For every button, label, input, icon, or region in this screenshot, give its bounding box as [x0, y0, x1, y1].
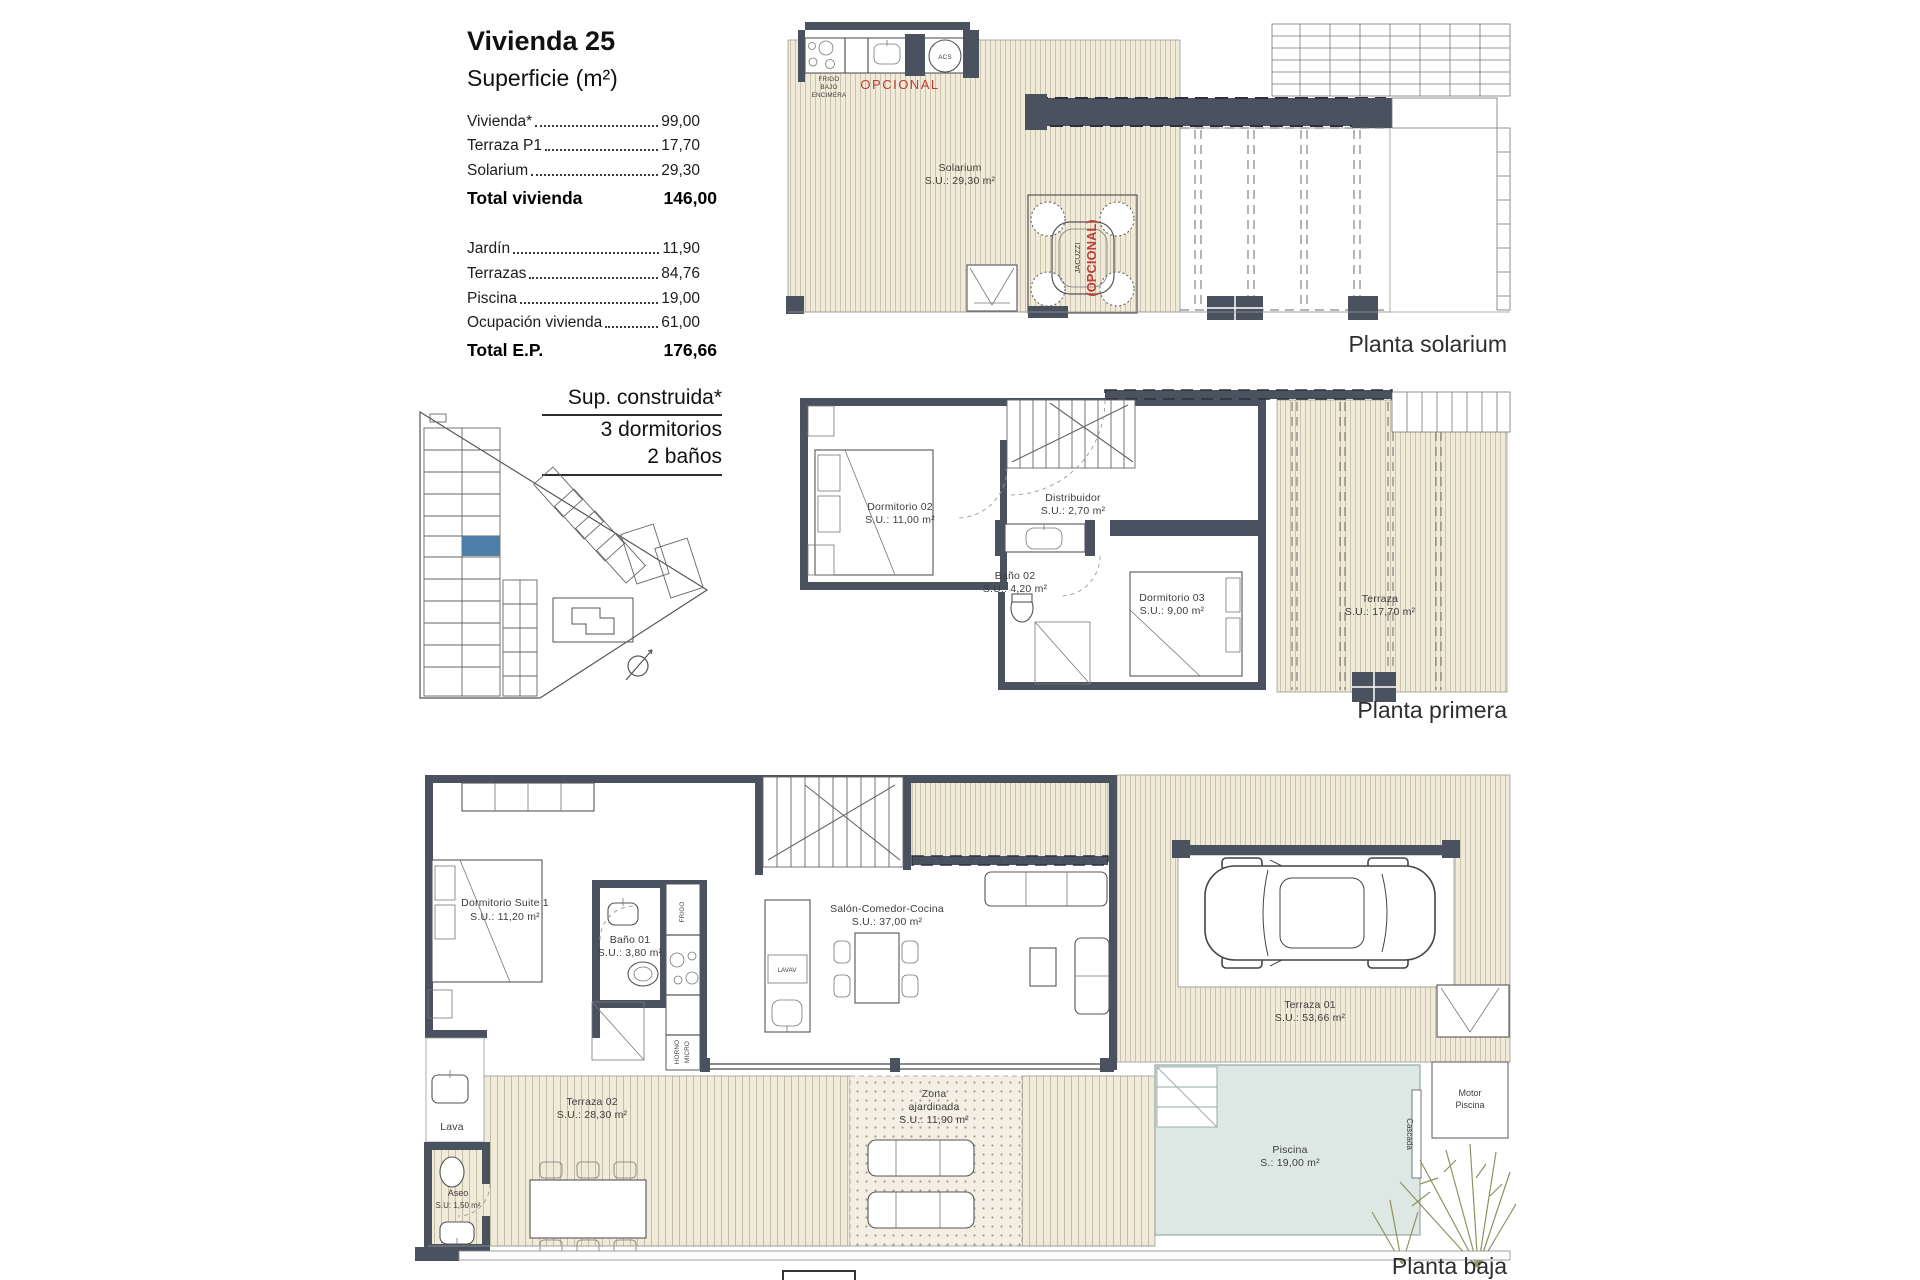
- surface-subtitle: Superficie (m²): [467, 65, 717, 92]
- room-area-solarium: S.U.: 29,30 m²: [925, 175, 996, 187]
- page-title: Vivienda 25: [467, 26, 717, 57]
- plan-sheet: Vivienda 25 Superficie (m²) Vivienda* 99…: [0, 0, 1920, 1280]
- row-value: 61,00: [661, 314, 700, 332]
- room-area-distribuidor: S.U.: 2,70 m²: [1041, 505, 1106, 517]
- cascada-label: Cascada: [1405, 1118, 1414, 1150]
- room-label-suite: Dormitorio Suite 1: [461, 897, 549, 909]
- room-area-dormitorio03: S.U.: 9,00 m²: [1140, 605, 1205, 617]
- table-spacer: [467, 209, 717, 234]
- plan-solarium: ACS FRIGO BAJO ENCIMERA OPCIONAL: [780, 20, 1520, 355]
- jacuzzi-label: JACUZZI: [1073, 243, 1082, 274]
- info-panel: Vivienda 25 Superficie (m²) Vivienda* 99…: [467, 26, 717, 361]
- row-value: 84,76: [661, 265, 700, 283]
- north-arrow-icon: [626, 650, 652, 680]
- row-value: 17,70: [661, 137, 700, 155]
- room-area-piscina: S.: 19,00 m²: [1260, 1157, 1320, 1169]
- room-label-distribuidor: Distribuidor: [1045, 492, 1101, 504]
- room-label-banio02: Baño 02: [995, 570, 1036, 582]
- surface-table: Vivienda* 99,00 Terraza P1 17,70 Solariu…: [467, 106, 717, 361]
- row-label: Jardín: [467, 240, 510, 258]
- dotted-leader: [605, 326, 658, 328]
- lavav-label: LAVAV: [778, 967, 798, 974]
- opcional-label: OPCIONAL: [860, 77, 939, 92]
- banio01-fixtures: [592, 898, 658, 1060]
- dotted-leader: [535, 125, 658, 127]
- stairs: [1007, 400, 1135, 468]
- motor-label-2: Piscina: [1455, 1100, 1484, 1110]
- dormitorio-02-bed: [808, 406, 933, 575]
- row-value: 11,90: [662, 240, 700, 258]
- row-label: Terrazas: [467, 265, 526, 283]
- kitchen-label-micro: MICRO: [684, 1041, 691, 1063]
- row-label: Total E.P.: [467, 340, 543, 361]
- table-row: Vivienda* 99,00: [467, 106, 717, 131]
- garden-label-1: Zona: [922, 1088, 947, 1100]
- room-area-banio01: S.U.: 3,80 m²: [598, 947, 663, 959]
- row-value: 29,30: [661, 162, 700, 180]
- plan-title-primera: Planta primera: [1357, 697, 1507, 723]
- stair-roof-upper: [1392, 392, 1510, 432]
- kitchen-label-horno: HORNO: [674, 1040, 681, 1064]
- skylight-box: [967, 265, 1017, 311]
- table-row: Ocupación vivienda 61,00: [467, 308, 717, 333]
- room-area-aseo: S.U: 1,50 m²: [436, 1201, 481, 1210]
- room-label-salon: Salón-Comedor-Cocina: [830, 903, 944, 915]
- plan-title-solarium: Planta solarium: [1348, 331, 1507, 355]
- row-label: Terraza P1: [467, 137, 542, 155]
- row-label: Ocupación vivienda: [467, 314, 602, 332]
- lava-label: Lava: [440, 1121, 464, 1133]
- room-label-solarium: Solarium: [938, 162, 981, 174]
- room-label-dormitorio02: Dormitorio 02: [867, 501, 933, 513]
- kitchen-label-frigo: FRIGO: [679, 902, 686, 923]
- room-label-terraza: Terraza: [1362, 593, 1398, 605]
- site-key-plan: [405, 405, 725, 715]
- room-label-piscina: Piscina: [1272, 1144, 1307, 1156]
- salon-furniture: LAVAV: [765, 872, 1109, 1032]
- plan-title-baja: Planta baja: [1392, 1253, 1507, 1279]
- row-label: Total vivienda: [467, 188, 582, 209]
- kitchen-label-encimera: ENCIMERA: [812, 92, 847, 99]
- row-label: Vivienda*: [467, 113, 532, 131]
- acs-label: ACS: [938, 54, 952, 61]
- table-row: Solarium 29,30: [467, 155, 717, 180]
- highlighted-unit: [462, 536, 500, 556]
- row-label: Piscina: [467, 290, 517, 308]
- room-area-dormitorio02: S.U.: 11,00 m²: [865, 514, 935, 526]
- plan-primera: Dormitorio 02 S.U.: 11,00 m² Baño 02 S.U…: [780, 385, 1520, 725]
- car: [1205, 858, 1435, 968]
- pergola-beam: [1025, 94, 1392, 130]
- dotted-leader: [545, 149, 658, 151]
- table-row: Jardín 11,90: [467, 234, 717, 259]
- table-row: Terrazas 84,76: [467, 258, 717, 283]
- room-label-dormitorio03: Dormitorio 03: [1139, 592, 1205, 604]
- skylight-box-baja: [1437, 985, 1509, 1037]
- stairs: [763, 777, 903, 867]
- lava-area: Lava: [426, 1038, 484, 1142]
- row-value: 19,00: [661, 290, 700, 308]
- jacuzzi-opcional-label: (OPCIONAL): [1084, 219, 1099, 296]
- table-row: Piscina 19,00: [467, 283, 717, 308]
- room-label-aseo: Aseo: [448, 1188, 469, 1198]
- room-area-terraza02: S.U.: 28,30 m²: [557, 1109, 628, 1121]
- room-label-terraza02: Terraza 02: [566, 1096, 618, 1108]
- room-area-terraza: S.U.: 17,70 m²: [1345, 606, 1416, 618]
- plan-baja: FRIGO HORNO MICRO LAVAV: [415, 765, 1520, 1280]
- total-ep-row: Total E.P. 176,66: [467, 332, 717, 361]
- terraza-deck: [1277, 400, 1507, 702]
- room-area-salon: S.U.: 37,00 m²: [852, 916, 923, 928]
- room-area-suite: S.U.: 11,20 m²: [470, 911, 540, 923]
- bottom-strip: [415, 1246, 1510, 1280]
- row-value: 99,00: [661, 113, 700, 131]
- garden-area: S.U.: 11,90 m²: [899, 1114, 969, 1126]
- dotted-leader: [513, 252, 659, 254]
- dotted-leader: [529, 277, 658, 279]
- motor-label-1: Motor: [1458, 1088, 1481, 1098]
- banio-02-fixtures: [995, 520, 1095, 684]
- motor-piscina-box: Motor Piscina: [1432, 1062, 1508, 1138]
- table-row: Terraza P1 17,70: [467, 131, 717, 156]
- total-vivienda-row: Total vivienda 146,00: [467, 180, 717, 209]
- kitchen-label-frigo: FRIGO: [819, 76, 840, 83]
- dormitorio-03-bed: [1130, 572, 1242, 676]
- garden-label-2: ajardinada: [908, 1101, 959, 1113]
- room-area-terraza01: S.U.: 53,66 m²: [1275, 1012, 1346, 1024]
- room-area-banio02: S.U.: 4,20 m²: [983, 583, 1048, 595]
- dotted-leader: [531, 174, 658, 176]
- dotted-leader: [520, 302, 658, 304]
- kitchen-strip: FRIGO HORNO MICRO: [666, 884, 700, 1070]
- row-value: 176,66: [663, 340, 717, 361]
- row-label: Solarium: [467, 162, 528, 180]
- kitchen-label-bajo: BAJO: [820, 84, 837, 91]
- room-label-banio01: Baño 01: [610, 934, 651, 946]
- room-label-terraza01: Terraza 01: [1284, 999, 1336, 1011]
- row-value: 146,00: [663, 188, 717, 209]
